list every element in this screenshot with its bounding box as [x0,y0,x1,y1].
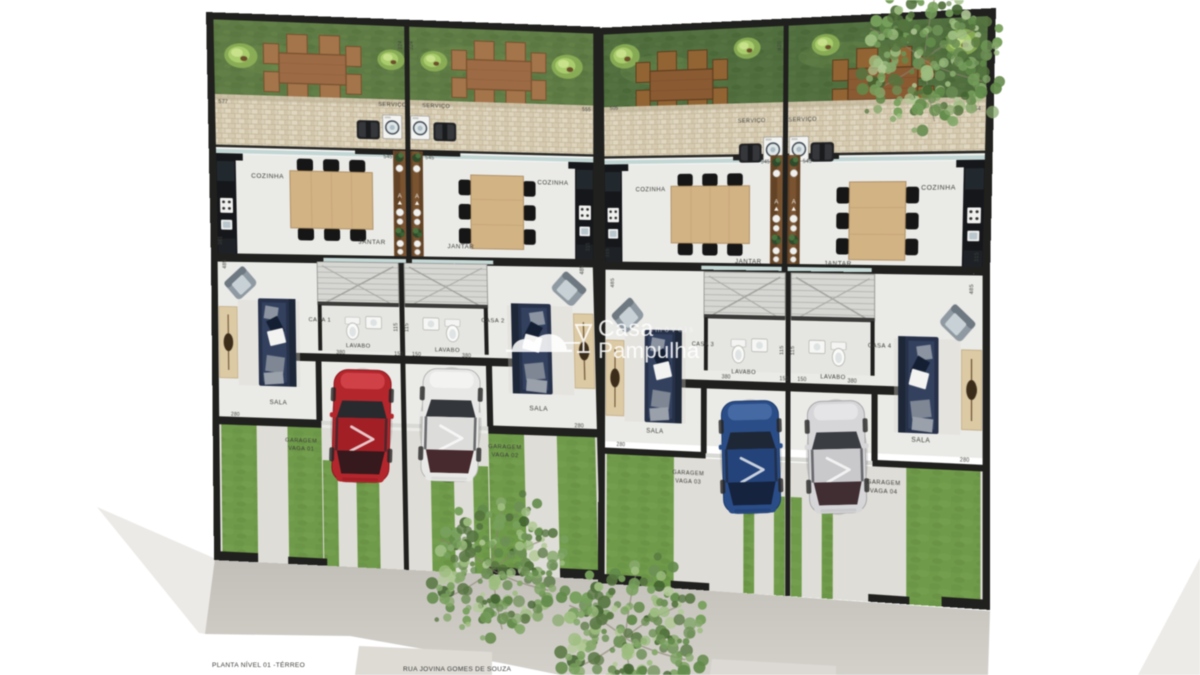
svg-text:Pampulha: Pampulha [598,338,700,363]
svg-text:imóveis: imóveis [651,325,696,334]
